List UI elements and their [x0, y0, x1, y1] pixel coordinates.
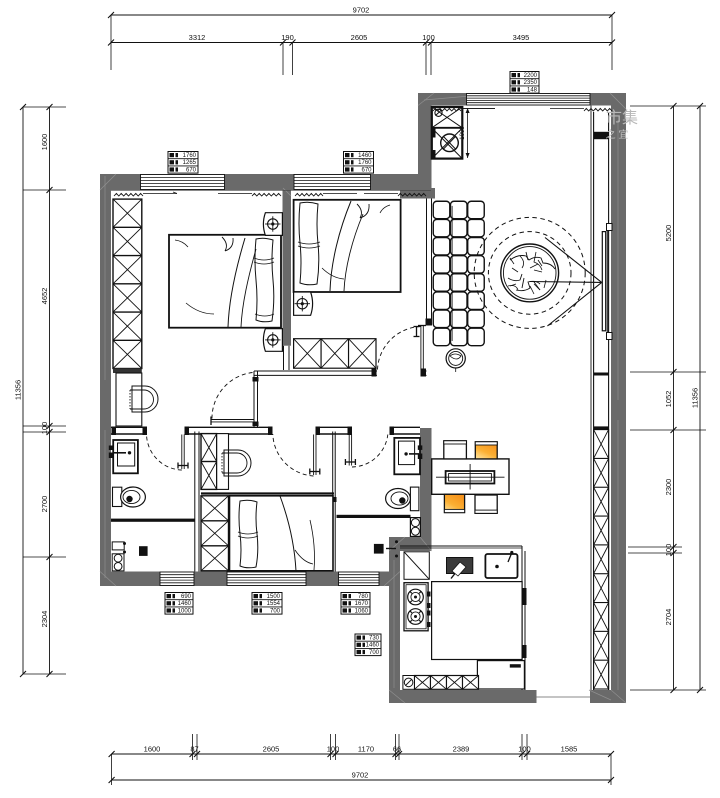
svg-text:148: 148: [527, 87, 538, 93]
svg-text:730: 730: [369, 635, 380, 641]
svg-text:1060: 1060: [355, 608, 369, 614]
svg-text:2605: 2605: [351, 33, 368, 42]
svg-text:2300: 2300: [664, 479, 673, 496]
svg-text:3495: 3495: [513, 33, 530, 42]
svg-text:190: 190: [281, 33, 294, 42]
svg-text:66: 66: [393, 745, 401, 754]
svg-text:3312: 3312: [189, 33, 206, 42]
svg-text:1500: 1500: [267, 594, 281, 600]
svg-text:2304: 2304: [40, 611, 49, 628]
svg-text:1760: 1760: [183, 153, 197, 159]
svg-text:市集: 市集: [606, 109, 638, 127]
svg-text:1585: 1585: [561, 745, 578, 754]
svg-text:100: 100: [422, 33, 435, 42]
svg-text:1670: 1670: [355, 601, 369, 607]
svg-text:2389: 2389: [453, 745, 470, 754]
svg-text:11356: 11356: [691, 388, 700, 408]
svg-text:2605: 2605: [263, 745, 280, 754]
svg-text:1600: 1600: [40, 134, 49, 151]
svg-text:87: 87: [190, 745, 198, 754]
svg-text:11356: 11356: [14, 380, 23, 400]
svg-text:1052: 1052: [664, 391, 673, 408]
svg-text:1460: 1460: [178, 601, 192, 607]
svg-text:100: 100: [327, 745, 340, 754]
svg-text:9702: 9702: [352, 771, 369, 780]
svg-text:690: 690: [181, 594, 192, 600]
svg-text:100: 100: [518, 745, 531, 754]
svg-text:1460: 1460: [358, 153, 372, 159]
svg-text:2704: 2704: [664, 609, 673, 626]
svg-text:670: 670: [361, 167, 372, 173]
svg-text:9702: 9702: [353, 6, 370, 15]
svg-text:1760: 1760: [358, 160, 372, 166]
svg-text:1460: 1460: [366, 643, 380, 649]
svg-text:700: 700: [270, 608, 281, 614]
svg-text:100: 100: [664, 544, 673, 557]
svg-text:700: 700: [369, 650, 380, 656]
svg-text:670: 670: [186, 167, 197, 173]
svg-text:1265: 1265: [183, 160, 197, 166]
svg-text:5200: 5200: [664, 225, 673, 242]
svg-text:之 宜: 之 宜: [606, 128, 629, 141]
svg-text:1600: 1600: [144, 745, 161, 754]
svg-text:1554: 1554: [267, 601, 281, 607]
svg-text:4652: 4652: [40, 288, 49, 305]
svg-text:1170: 1170: [358, 745, 374, 754]
svg-text:780: 780: [358, 594, 369, 600]
svg-text:2200: 2200: [524, 73, 538, 79]
svg-text:2350: 2350: [524, 80, 538, 86]
svg-text:1000: 1000: [460, 126, 466, 140]
svg-text:2700: 2700: [40, 496, 49, 513]
svg-text:1000: 1000: [178, 608, 192, 614]
